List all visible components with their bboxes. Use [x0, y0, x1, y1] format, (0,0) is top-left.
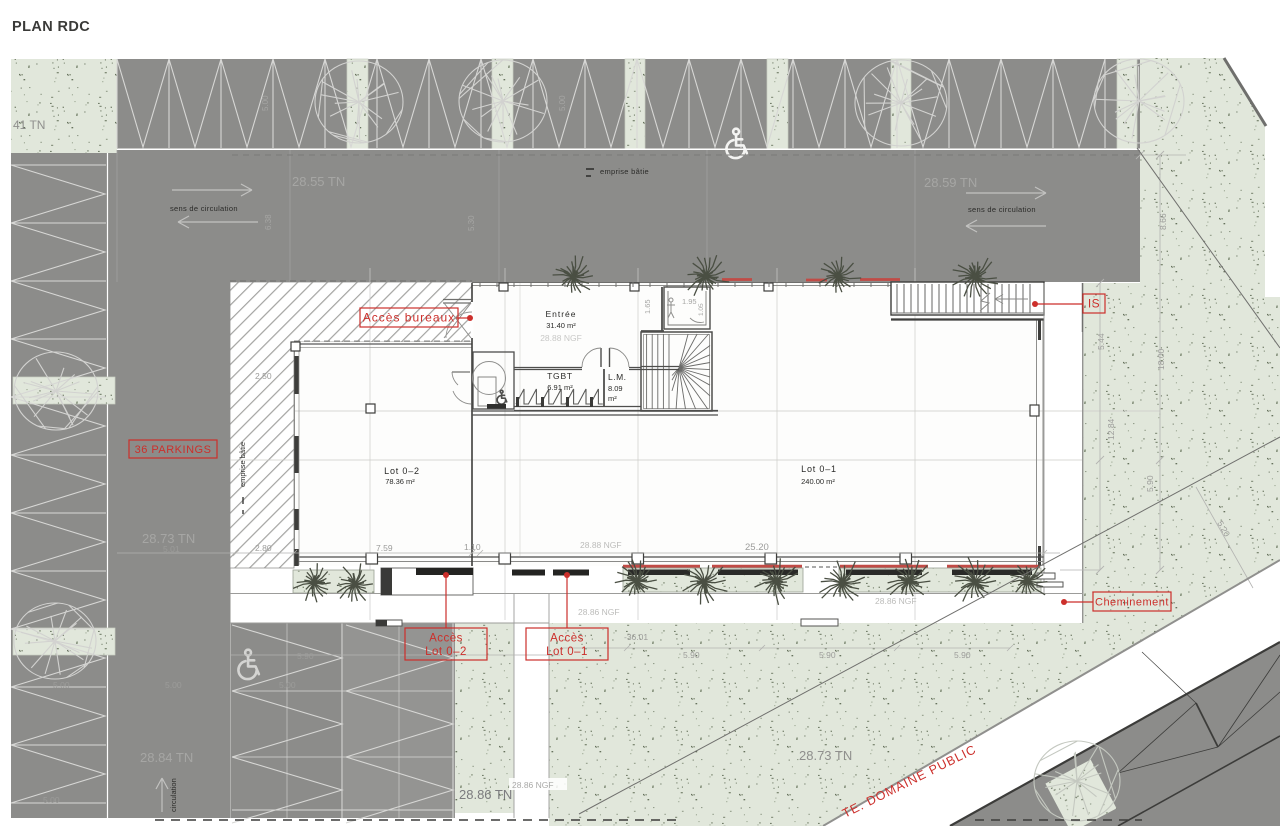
svg-text:25.20: 25.20 [745, 542, 769, 553]
svg-text:78.36 m²: 78.36 m² [385, 477, 415, 486]
svg-text:1.95: 1.95 [682, 297, 697, 306]
svg-text:28.86 NGF: 28.86 NGF [875, 596, 917, 606]
svg-text:28.88 NGF: 28.88 NGF [580, 540, 622, 550]
svg-text:sens de circulation: sens de circulation [170, 204, 238, 213]
svg-text:5.00: 5.00 [261, 95, 270, 111]
svg-text:28.86 TN: 28.86 TN [459, 787, 512, 802]
svg-text:28.84 TN: 28.84 TN [140, 750, 193, 765]
svg-text:5.00: 5.00 [558, 95, 567, 111]
svg-text:8.66: 8.66 [1158, 213, 1168, 230]
svg-text:18.00: 18.00 [1156, 348, 1166, 370]
svg-text:31.40 m²: 31.40 m² [546, 321, 576, 330]
svg-text:5.90: 5.90 [683, 650, 700, 660]
svg-text:6.91 m²: 6.91 m² [547, 383, 573, 392]
svg-text:1.05: 1.05 [698, 303, 705, 316]
svg-text:-36.01: -36.01 [624, 632, 648, 642]
svg-text:28.86 NGF: 28.86 NGF [512, 780, 554, 790]
svg-text:41 TN: 41 TN [13, 118, 45, 132]
svg-text:8.09: 8.09 [608, 384, 623, 393]
svg-text:Lot 0–2: Lot 0–2 [384, 466, 420, 476]
svg-text:5.44: 5.44 [1096, 333, 1106, 350]
svg-text:5.00: 5.00 [43, 795, 60, 805]
svg-text:7.59: 7.59 [376, 543, 393, 553]
svg-text:5.00: 5.00 [165, 680, 182, 690]
svg-text:Lot 0–1: Lot 0–1 [801, 464, 837, 474]
svg-text:5.01: 5.01 [163, 544, 180, 554]
svg-text:28.55 TN: 28.55 TN [292, 174, 345, 189]
svg-text:TGBT: TGBT [547, 371, 573, 381]
svg-text:Cheminement: Cheminement [1095, 596, 1169, 608]
svg-text:28.88 NGF: 28.88 NGF [540, 333, 582, 343]
svg-text:emprise bâtie: emprise bâtie [600, 167, 649, 176]
svg-text:5.00: 5.00 [53, 680, 70, 690]
svg-text:5.90: 5.90 [1145, 475, 1155, 492]
svg-text:5.90: 5.90 [297, 651, 314, 661]
svg-text:Entrée: Entrée [545, 309, 576, 319]
svg-text:circulation: circulation [169, 778, 178, 812]
svg-text:1.10: 1.10 [464, 542, 481, 552]
svg-text:emprise bâtie: emprise bâtie [238, 442, 247, 487]
svg-text:Accès: Accès [550, 632, 584, 644]
svg-text:IS: IS [1088, 297, 1100, 311]
svg-text:Lot 0–1: Lot 0–1 [546, 646, 588, 658]
svg-text:2.80: 2.80 [255, 543, 272, 553]
svg-text:240.00 m²: 240.00 m² [801, 477, 835, 486]
svg-text:5.00: 5.00 [279, 680, 296, 690]
svg-text:5.90: 5.90 [954, 650, 971, 660]
svg-text:28.86 NGF: 28.86 NGF [578, 607, 620, 617]
svg-text:28.59 TN: 28.59 TN [924, 175, 977, 190]
svg-text:Accès bureaux: Accès bureaux [363, 311, 455, 325]
svg-text:2.50: 2.50 [255, 371, 272, 381]
svg-text:36 PARKINGS: 36 PARKINGS [135, 444, 212, 456]
svg-text:L.M.: L.M. [608, 372, 627, 382]
svg-text:Lot 0–2: Lot 0–2 [425, 646, 467, 658]
svg-text:1.65: 1.65 [643, 299, 652, 314]
svg-text:5.30: 5.30 [467, 215, 476, 231]
svg-text:m²: m² [608, 394, 617, 403]
svg-text:Accès: Accès [429, 632, 463, 644]
svg-text:6.38: 6.38 [264, 214, 273, 230]
svg-text:28.73 TN: 28.73 TN [799, 748, 852, 763]
svg-text:sens de circulation: sens de circulation [968, 205, 1036, 214]
svg-text:12.84: 12.84 [1106, 418, 1116, 440]
svg-text:PLAN RDC: PLAN RDC [12, 19, 90, 35]
svg-text:5.90: 5.90 [819, 650, 836, 660]
